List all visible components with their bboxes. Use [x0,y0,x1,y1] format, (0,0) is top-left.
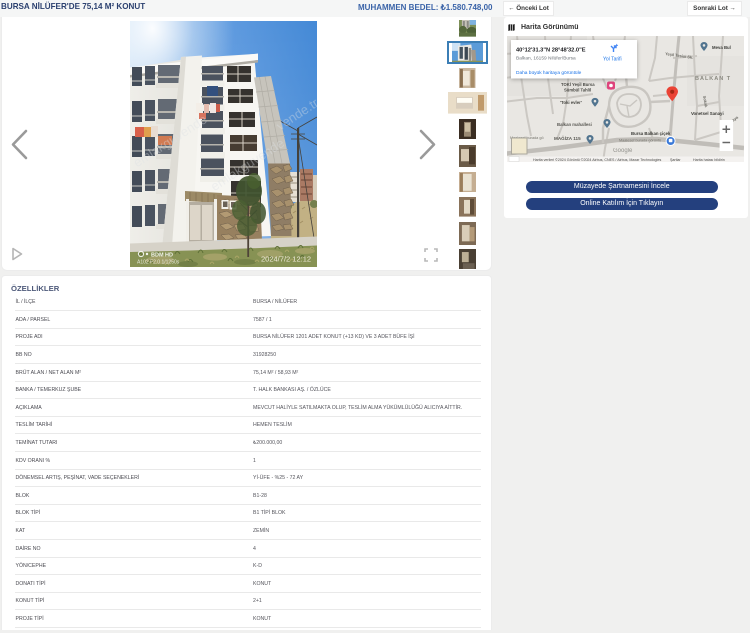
svg-text:Harita hatası bildirin: Harita hatası bildirin [693,158,725,162]
svg-text:40°12'31.3"N 28°48'32.0"E: 40°12'31.3"N 28°48'32.0"E [516,48,586,54]
svg-text:Bursa Balkan çiçek: Bursa Balkan çiçek [631,131,671,136]
svg-text:Google: Google [613,148,633,154]
svg-text:Balkan, 16159 Nilüfer/Bursa: Balkan, 16159 Nilüfer/Bursa [516,56,576,62]
svg-text:BALKAN T: BALKAN T [695,76,731,82]
svg-text:Meva Bul: Meva Bul [712,45,731,50]
svg-text:Vonetsel Sanayi: Vonetsel Sanayi [691,111,724,116]
svg-text:Balkan mahallesi: Balkan mahallesi [557,122,592,127]
svg-text:Sümbül Tahlil: Sümbül Tahlil [564,88,591,93]
svg-text:Yol Tarifi: Yol Tarifi [603,57,622,63]
svg-text:TOKİ Yeşil Bursa: TOKİ Yeşil Bursa [561,82,595,87]
svg-text:A102 F2.0 1/1250s: A102 F2.0 1/1250s [137,259,180,265]
svg-text:Daha büyük haritaya görüntüle: Daha büyük haritaya görüntüle [516,70,582,76]
svg-text:'Toki evler': 'Toki evler' [560,100,582,105]
svg-text:Şartlar: Şartlar [670,158,681,162]
svg-text:Harita verileri ©2024 Görüntü: Harita verileri ©2024 Görüntü ©2024 Airb… [533,158,661,162]
svg-text:BDM HD: BDM HD [151,252,173,258]
svg-text:2024/7/2 12:12: 2024/7/2 12:12 [261,254,311,263]
svg-text:MAĞİZA 115: MAĞİZA 115 [554,134,581,141]
svg-text:Maalesef burada görüntü: Maalesef burada görüntü [619,139,661,143]
